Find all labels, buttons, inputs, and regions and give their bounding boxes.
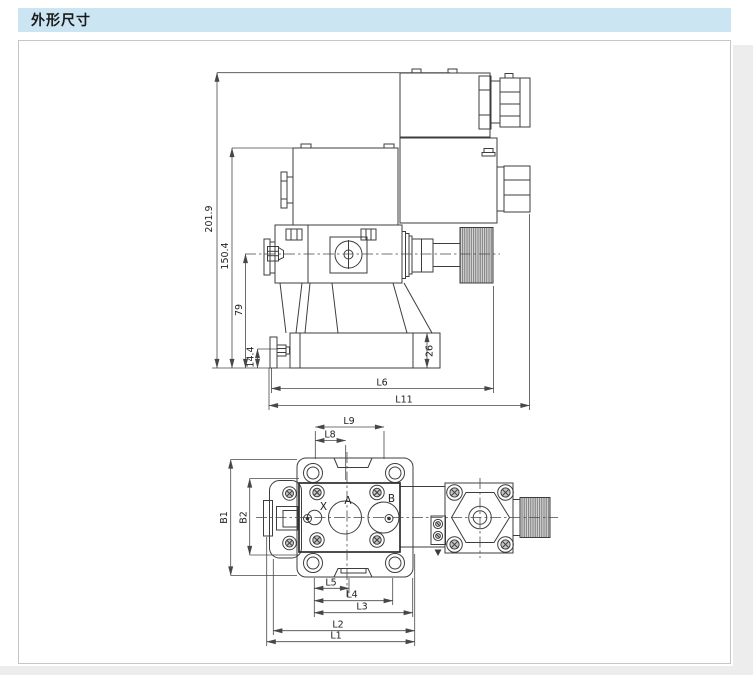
section-title: 外形尺寸 (18, 10, 91, 30)
section-header: 外形尺寸 (18, 8, 731, 32)
drawing-panel (18, 40, 731, 664)
page-margin-bottom (0, 666, 753, 675)
page-margin-right (733, 45, 753, 675)
